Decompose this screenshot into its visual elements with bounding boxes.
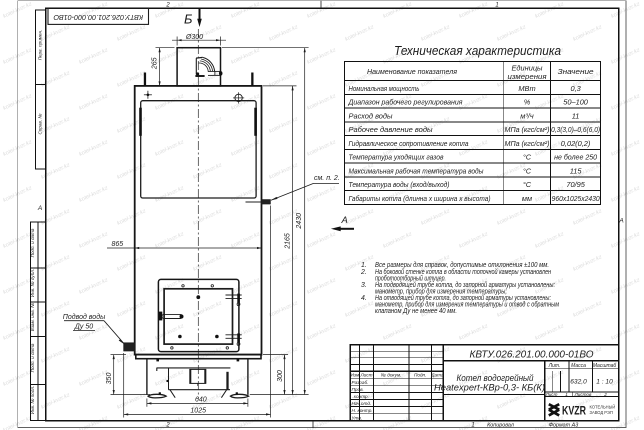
svg-text:Подп. и дата: Подп. и дата [30,228,35,257]
svg-text:Наименование показателя: Наименование показателя [367,67,457,76]
svg-text:1: 1 [565,392,568,397]
svg-text:2: 2 [165,3,170,9]
svg-text:Габариты котла (длинна х ширин: Габариты котла (длинна х ширина х высота… [349,194,491,203]
svg-text:2165: 2165 [284,233,291,250]
svg-text:КВТУ.026.201.00.000-01ВО: КВТУ.026.201.00.000-01ВО [53,13,143,22]
svg-text:Heatexpert-КВр-0,3- КБ(К): Heatexpert-КВр-0,3- КБ(К) [434,383,545,393]
svg-text:МПа (кгс/см²): МПа (кгс/см²) [505,139,551,148]
svg-text:1.: 1. [361,262,367,269]
svg-text:А: А [37,205,42,212]
svg-text:м³/ч: м³/ч [520,111,534,120]
svg-text:1: 1 [471,423,474,429]
svg-text:0,3: 0,3 [570,84,581,93]
svg-text:Масштаб: Масштаб [593,363,617,369]
svg-text:2: 2 [165,423,170,429]
svg-text:Номинальная мощность: Номинальная мощность [349,84,420,93]
svg-text:Лит.: Лит. [548,363,561,369]
svg-text:Взам. инв. №: Взам. инв. № [30,303,35,331]
svg-text:632,0: 632,0 [570,379,587,386]
svg-text:Листов: Листов [574,392,592,397]
svg-text:°С: °С [523,153,532,162]
svg-text:см. п. 2.: см. п. 2. [314,175,340,182]
svg-text:Разраб.: Разраб. [352,380,369,385]
svg-text:КВТУ.026.201.00.000-01ВО: КВТУ.026.201.00.000-01ВО [470,349,594,360]
svg-text:Дата: Дата [430,373,444,378]
svg-text:Расход воды: Расход воды [349,111,394,120]
svg-text:Котел водогрейный: Котел водогрейный [457,373,534,383]
svg-text:2430: 2430 [296,213,303,230]
svg-text:Максимальная рабочая температу: Максимальная рабочая температура воды [349,166,484,175]
svg-text:Температура уходящих газов: Температура уходящих газов [349,153,444,162]
svg-text:70/95: 70/95 [566,180,585,189]
svg-text:Утв.: Утв. [352,415,363,420]
svg-text:Инв. № дубл.: Инв. № дубл. [30,269,35,297]
svg-text:Температура воды (вход/выход): Температура воды (вход/выход) [349,180,450,189]
svg-text:Копировал: Копировал [487,422,514,428]
svg-text:11: 11 [572,111,580,120]
svg-text:115: 115 [570,166,583,175]
svg-text:Подп. и дата: Подп. и дата [30,343,35,372]
svg-text:Изм: Изм [351,373,360,378]
svg-text:Ду 50: Ду 50 [74,324,93,331]
svg-text:350: 350 [106,373,113,385]
svg-text:265: 265 [152,57,159,70]
svg-text:Подп.: Подп. [414,373,426,378]
svg-text:865: 865 [111,241,123,248]
svg-text:Справ. №: Справ. № [38,114,43,135]
svg-text:1 : 10: 1 : 10 [596,379,613,386]
svg-text:640: 640 [195,397,207,404]
svg-text:4.: 4. [361,295,367,302]
svg-text:Лист: Лист [359,373,372,378]
svg-text:Лист: Лист [545,392,558,397]
svg-text:300: 300 [277,370,284,382]
svg-text:МВт: МВт [518,84,535,93]
svg-text:°С: °С [523,180,532,189]
svg-text:клапаном Ду не менее 40 мм.: клапаном Ду не менее 40 мм. [375,308,457,315]
svg-text:3.: 3. [361,282,367,289]
svg-text:№ докум.: № докум. [381,373,402,378]
svg-text:мм: мм [522,194,532,203]
svg-text:2.: 2. [360,269,367,276]
svg-text:%: % [524,98,531,107]
svg-text:не более 250: не более 250 [554,153,598,162]
svg-text:°С: °С [523,166,532,175]
svg-text:KVZR: KVZR [562,404,586,418]
svg-text:Масса: Масса [571,363,586,369]
svg-text:50–100: 50–100 [563,98,589,107]
svg-text:Инв. № подл.: Инв. № подл. [30,386,35,415]
svg-text:Все размеры для справок, допус: Все размеры для справок, допустимые откл… [375,261,549,269]
svg-text:Техническая характеристика: Техническая характеристика [394,43,561,58]
svg-text:Нач.отд.: Нач.отд. [352,401,372,406]
svg-text:Диапазон рабочего регулировани: Диапазон рабочего регулирования [348,98,463,107]
svg-text:1: 1 [495,3,498,9]
svg-text:Б: Б [184,12,193,27]
svg-text:Ø300: Ø300 [185,34,203,41]
svg-text:960х1025х2430: 960х1025х2430 [552,194,600,203]
svg-text:0,02(0,2): 0,02(0,2) [561,139,591,148]
svg-text:Рабочее давление воды: Рабочее давление воды [349,125,434,134]
svg-text:измерения: измерения [508,72,547,81]
svg-text:0,3(3,0)–0,6(6,0): 0,3(3,0)–0,6(6,0) [551,127,600,134]
svg-text:1025: 1025 [190,408,206,415]
svg-text:Пров.: Пров. [352,387,364,392]
svg-text:МПа (кгс/см²): МПа (кгс/см²) [505,125,551,134]
svg-text:А: А [341,215,348,226]
svg-text:Формат А3: Формат А3 [549,422,579,428]
svg-text:2: 2 [603,392,607,397]
svg-text:Значение: Значение [558,67,594,76]
svg-text:.контр.: .контр. [353,394,369,399]
svg-text:Перв. примен.: Перв. примен. [38,30,43,61]
svg-text:Гидравлическое сопротивление к: Гидравлическое сопротивление котла [349,139,469,148]
svg-text:Н. контр.: Н. контр. [352,408,373,413]
svg-text:ЗАВОД РЭП: ЗАВОД РЭП [590,410,613,415]
svg-text:А: А [618,218,623,225]
svg-text:Подвод воды: Подвод воды [63,313,106,321]
